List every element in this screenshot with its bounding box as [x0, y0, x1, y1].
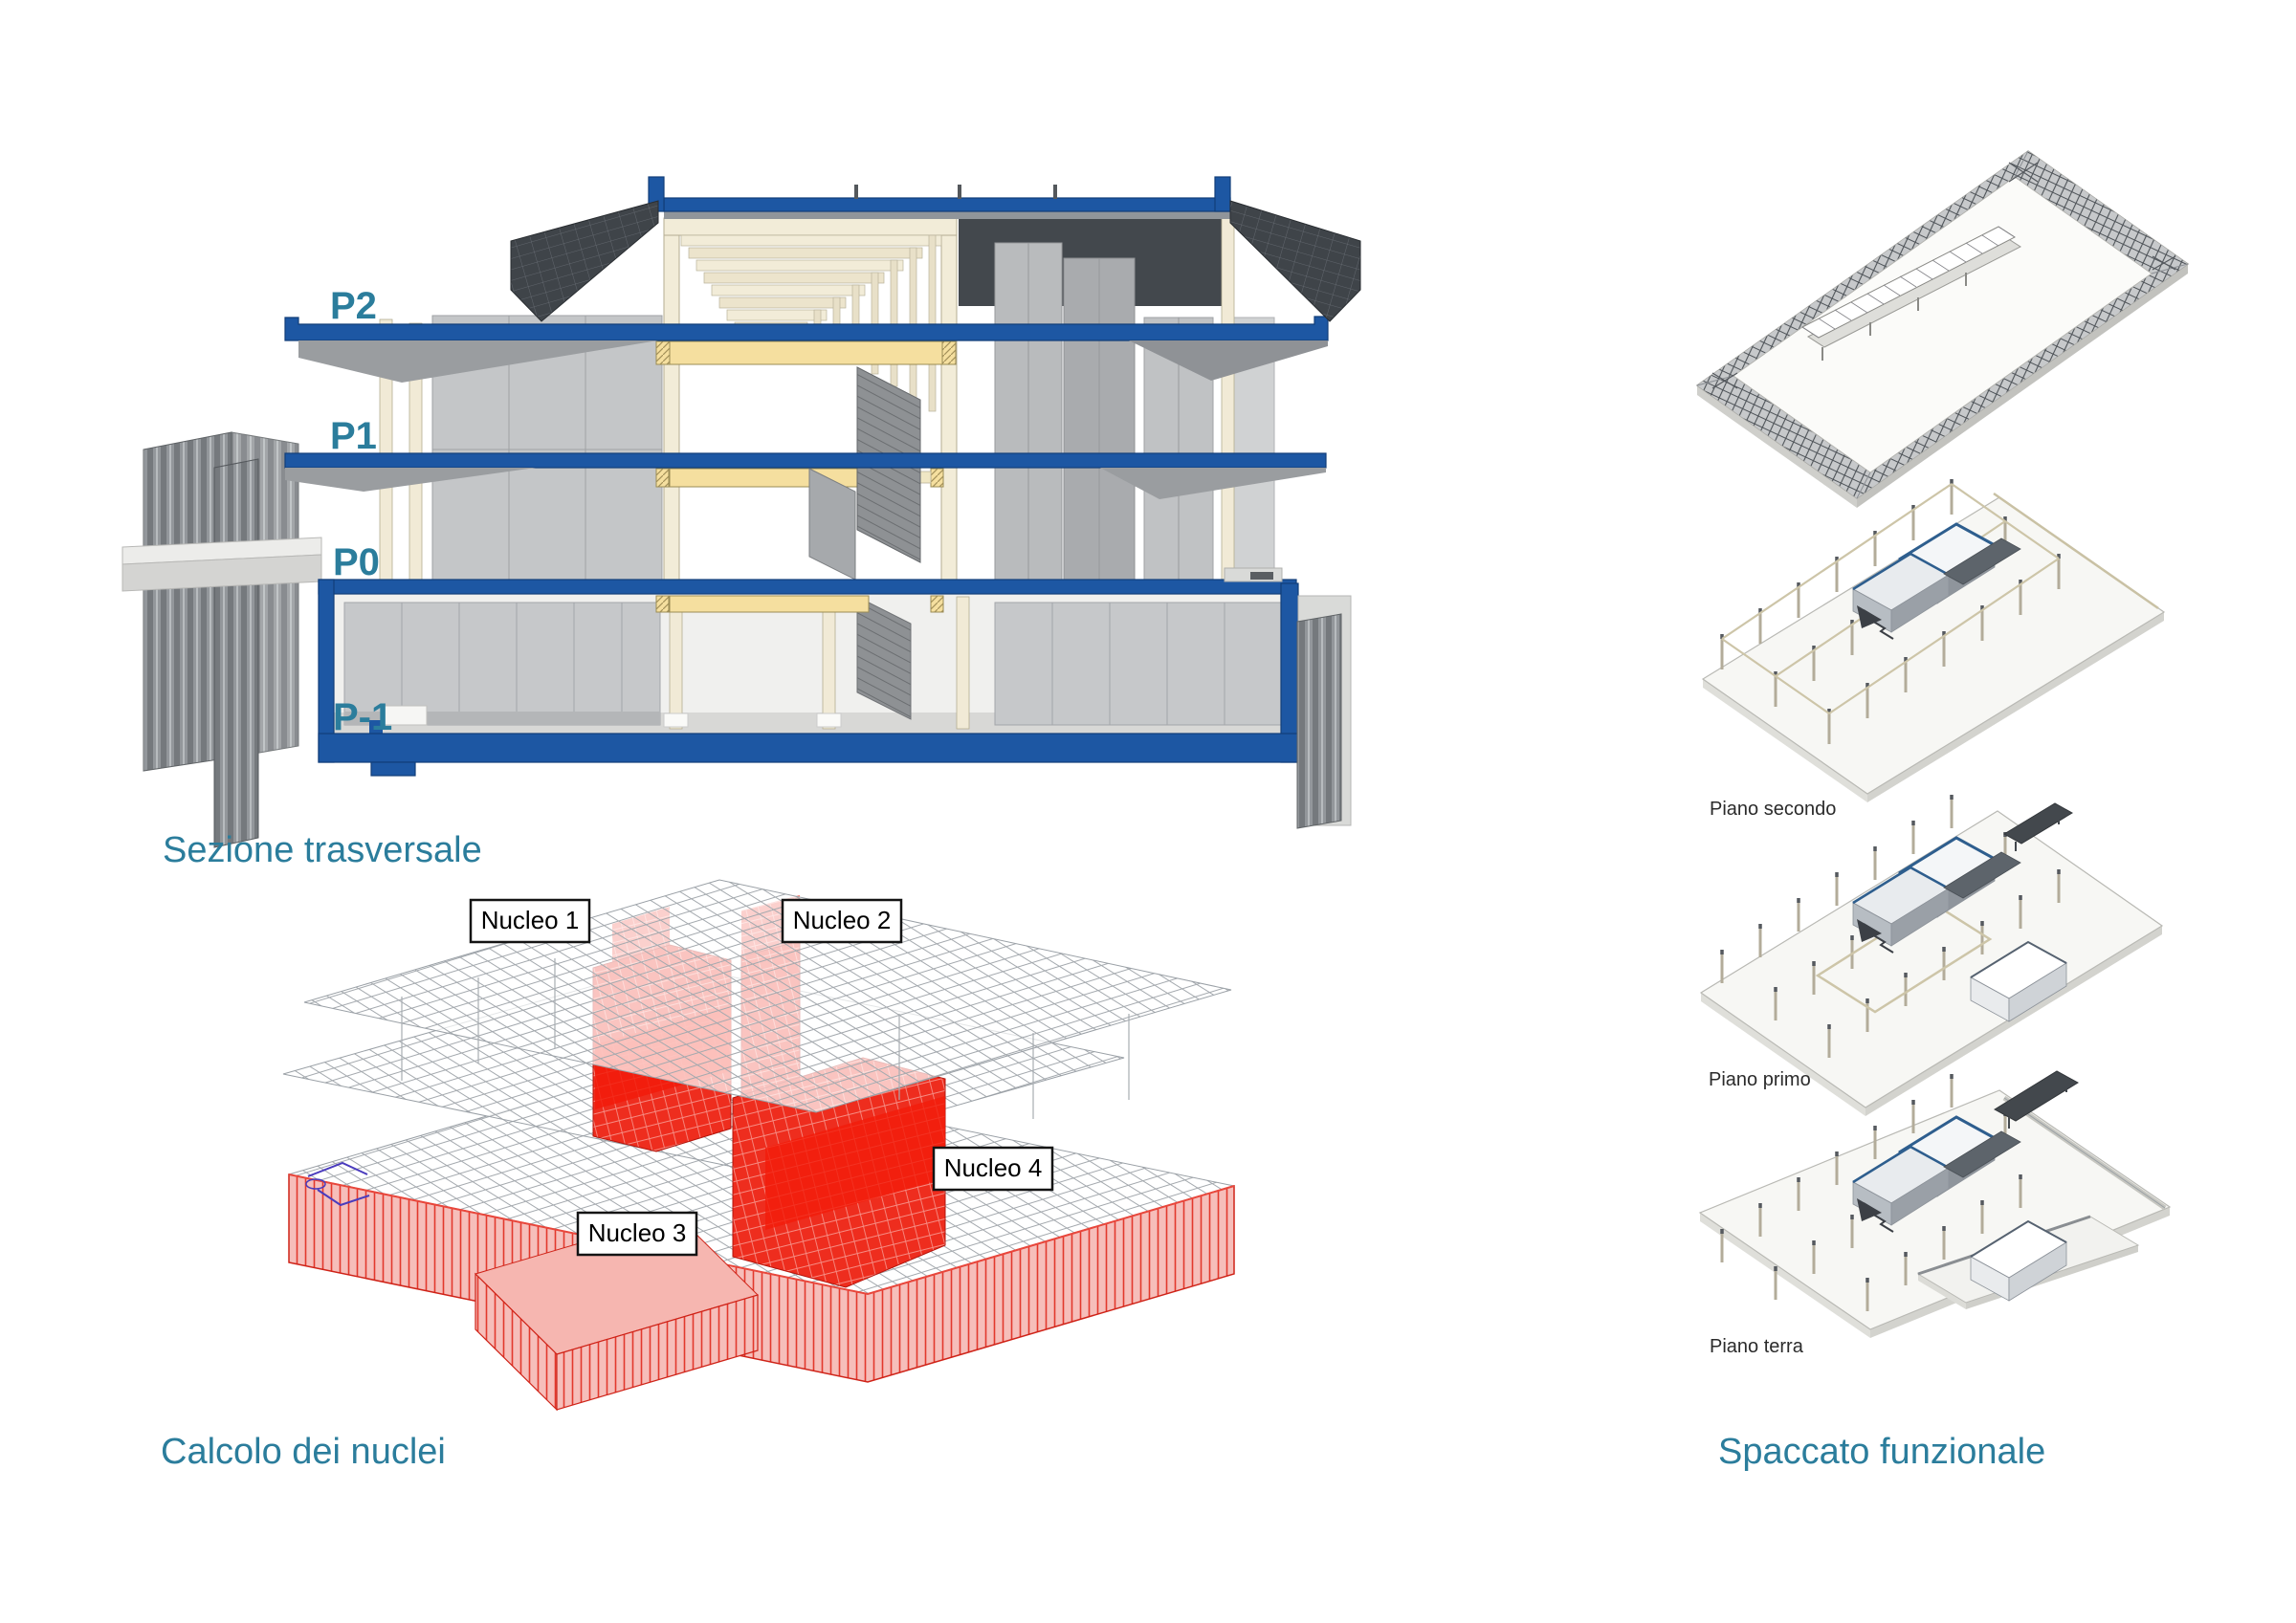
basement-interior [334, 594, 1287, 734]
presentation-board: P2 P1 P0 P-1 Sezione trasversale [0, 0, 2296, 1623]
floor-label-p2: P2 [330, 285, 377, 327]
axo-piano-secondo: Piano secondo [1703, 479, 2164, 820]
nucleo-4-label: Nucleo 4 [944, 1153, 1043, 1182]
piano-secondo-label: Piano secondo [1710, 799, 1836, 820]
spaccato-title: Spaccato funzionale [1718, 1432, 2045, 1472]
nucleo-2-label: Nucleo 2 [793, 906, 892, 934]
drawing-canvas: P2 P1 P0 P-1 Sezione trasversale [0, 0, 2296, 1623]
roof-overhang-right [1230, 201, 1360, 321]
cross-section-drawing: P2 P1 P0 P-1 Sezione trasversale [122, 177, 1360, 870]
roof-overhang-left [511, 201, 658, 321]
exploded-axonometrics: Piano secondo Piano primo [1697, 151, 2188, 1472]
slab-p1 [285, 453, 1326, 468]
slab-p0 [319, 580, 1296, 594]
floor-label-p1: P1 [330, 415, 377, 457]
sheet-piling-left [143, 432, 298, 847]
floor-label-p0: P0 [333, 541, 380, 583]
section-title: Sezione trasversale [163, 830, 482, 870]
slab-p-1 [319, 734, 1298, 762]
axo-piano-primo: Piano primo [1701, 795, 2162, 1116]
nucleo-3-label: Nucleo 3 [588, 1218, 687, 1247]
floor-label-p-1: P-1 [333, 696, 392, 738]
roof-slab [664, 198, 1230, 211]
axo-piano-terra: Piano terra [1700, 1071, 2170, 1357]
axo-roof [1697, 151, 2188, 508]
piano-terra-label: Piano terra [1710, 1336, 1804, 1357]
fem-core-model: Nucleo 1 Nucleo 2 Nucleo 3 Nucleo 4 Calc… [161, 880, 1234, 1472]
ground-slab-left [122, 537, 321, 591]
nucleo-1-label: Nucleo 1 [481, 906, 580, 934]
nuclei-title: Calcolo dei nuclei [161, 1432, 446, 1472]
piano-primo-label: Piano primo [1709, 1069, 1811, 1090]
